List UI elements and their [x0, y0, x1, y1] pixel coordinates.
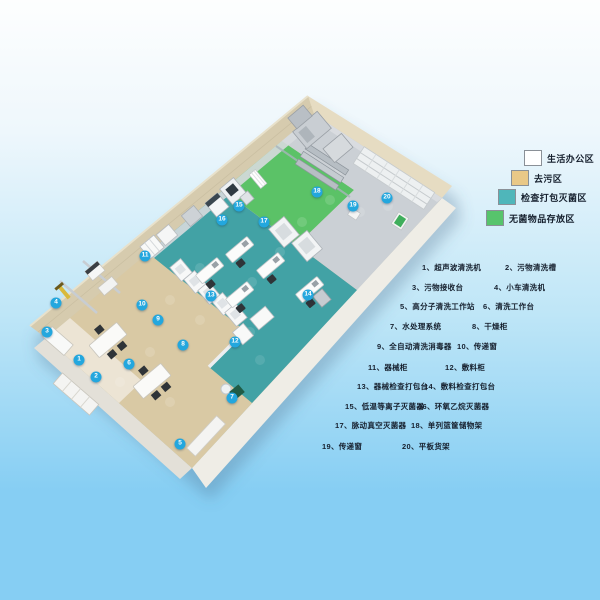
equipment-list-item-16: 16、环氧乙烷灭菌器: [418, 401, 489, 412]
equipment-list-item-20: 20、平板货架: [402, 441, 450, 452]
floor-marker-5: 5: [175, 439, 186, 450]
equipment-list-item-15: 15、低温等离子灭菌器: [345, 401, 424, 412]
legend-label: 无菌物品存放区: [509, 212, 575, 225]
legend-label: 生活办公区: [547, 152, 594, 165]
floor-marker-11: 11: [140, 251, 151, 262]
floor-marker-12: 12: [230, 337, 241, 348]
equipment-list-item-8: 8、干燥柜: [472, 321, 508, 332]
equipment-list-item-7: 7、水处理系统: [390, 321, 441, 332]
floor-marker-4: 4: [51, 298, 62, 309]
floor-marker-6: 6: [124, 359, 135, 370]
legend: 生活办公区去污区检查打包灭菌区无菌物品存放区: [0, 0, 600, 600]
equipment-list-item-14: 14、敷料检查打包台: [424, 381, 495, 392]
equipment-list-item-6: 6、清洗工作台: [483, 301, 534, 312]
equipment-list-item-18: 18、单列篮筐储物架: [411, 420, 482, 431]
equipment-list-item-11: 11、器械柜: [368, 362, 408, 373]
floor-marker-13: 13: [206, 291, 217, 302]
equipment-list-item-5: 5、高分子清洗工作站: [400, 301, 475, 312]
floor-marker-20: 20: [382, 193, 393, 204]
floor-marker-15: 15: [234, 201, 245, 212]
legend-item-3: 检查打包灭菌区: [498, 189, 587, 205]
floor-marker-8: 8: [178, 340, 189, 351]
equipment-list-item-12: 12、敷料柜: [445, 362, 485, 373]
equipment-list-item-10: 10、传递窗: [457, 341, 497, 352]
floor-marker-10: 10: [137, 300, 148, 311]
floor-marker-2: 2: [91, 372, 102, 383]
legend-label: 检查打包灭菌区: [521, 191, 587, 204]
legend-swatch: [486, 210, 504, 226]
equipment-list-item-2: 2、污物清洗槽: [505, 262, 556, 273]
floor-marker-14: 14: [303, 290, 314, 301]
equipment-list-item-9: 9、全自动清洗消毒器: [377, 341, 452, 352]
equipment-list-item-1: 1、超声波清洗机: [422, 262, 481, 273]
floor-marker-18: 18: [312, 187, 323, 198]
legend-swatch: [498, 189, 516, 205]
legend-item-2: 去污区: [511, 170, 562, 186]
floor-marker-19: 19: [348, 201, 359, 212]
floor-marker-17: 17: [259, 217, 270, 228]
equipment-list-item-4: 4、小车清洗机: [494, 282, 545, 293]
legend-swatch: [524, 150, 542, 166]
equipment-list-item-17: 17、脉动真空灭菌器: [335, 420, 406, 431]
floor-marker-16: 16: [217, 215, 228, 226]
floor-marker-7: 7: [227, 393, 238, 404]
floor-marker-1: 1: [74, 355, 85, 366]
floor-marker-3: 3: [42, 327, 53, 338]
legend-label: 去污区: [534, 172, 562, 185]
legend-item-4: 无菌物品存放区: [486, 210, 575, 226]
legend-item-1: 生活办公区: [524, 150, 594, 166]
equipment-list-item-19: 19、传递窗: [322, 441, 362, 452]
floor-marker-9: 9: [153, 315, 164, 326]
legend-swatch: [511, 170, 529, 186]
equipment-list-item-3: 3、污物接收台: [412, 282, 463, 293]
scene: 1234567891011121314151617181920 1、超声波清洗机…: [0, 0, 600, 600]
equipment-list-item-13: 13、器械检查打包台: [357, 381, 428, 392]
